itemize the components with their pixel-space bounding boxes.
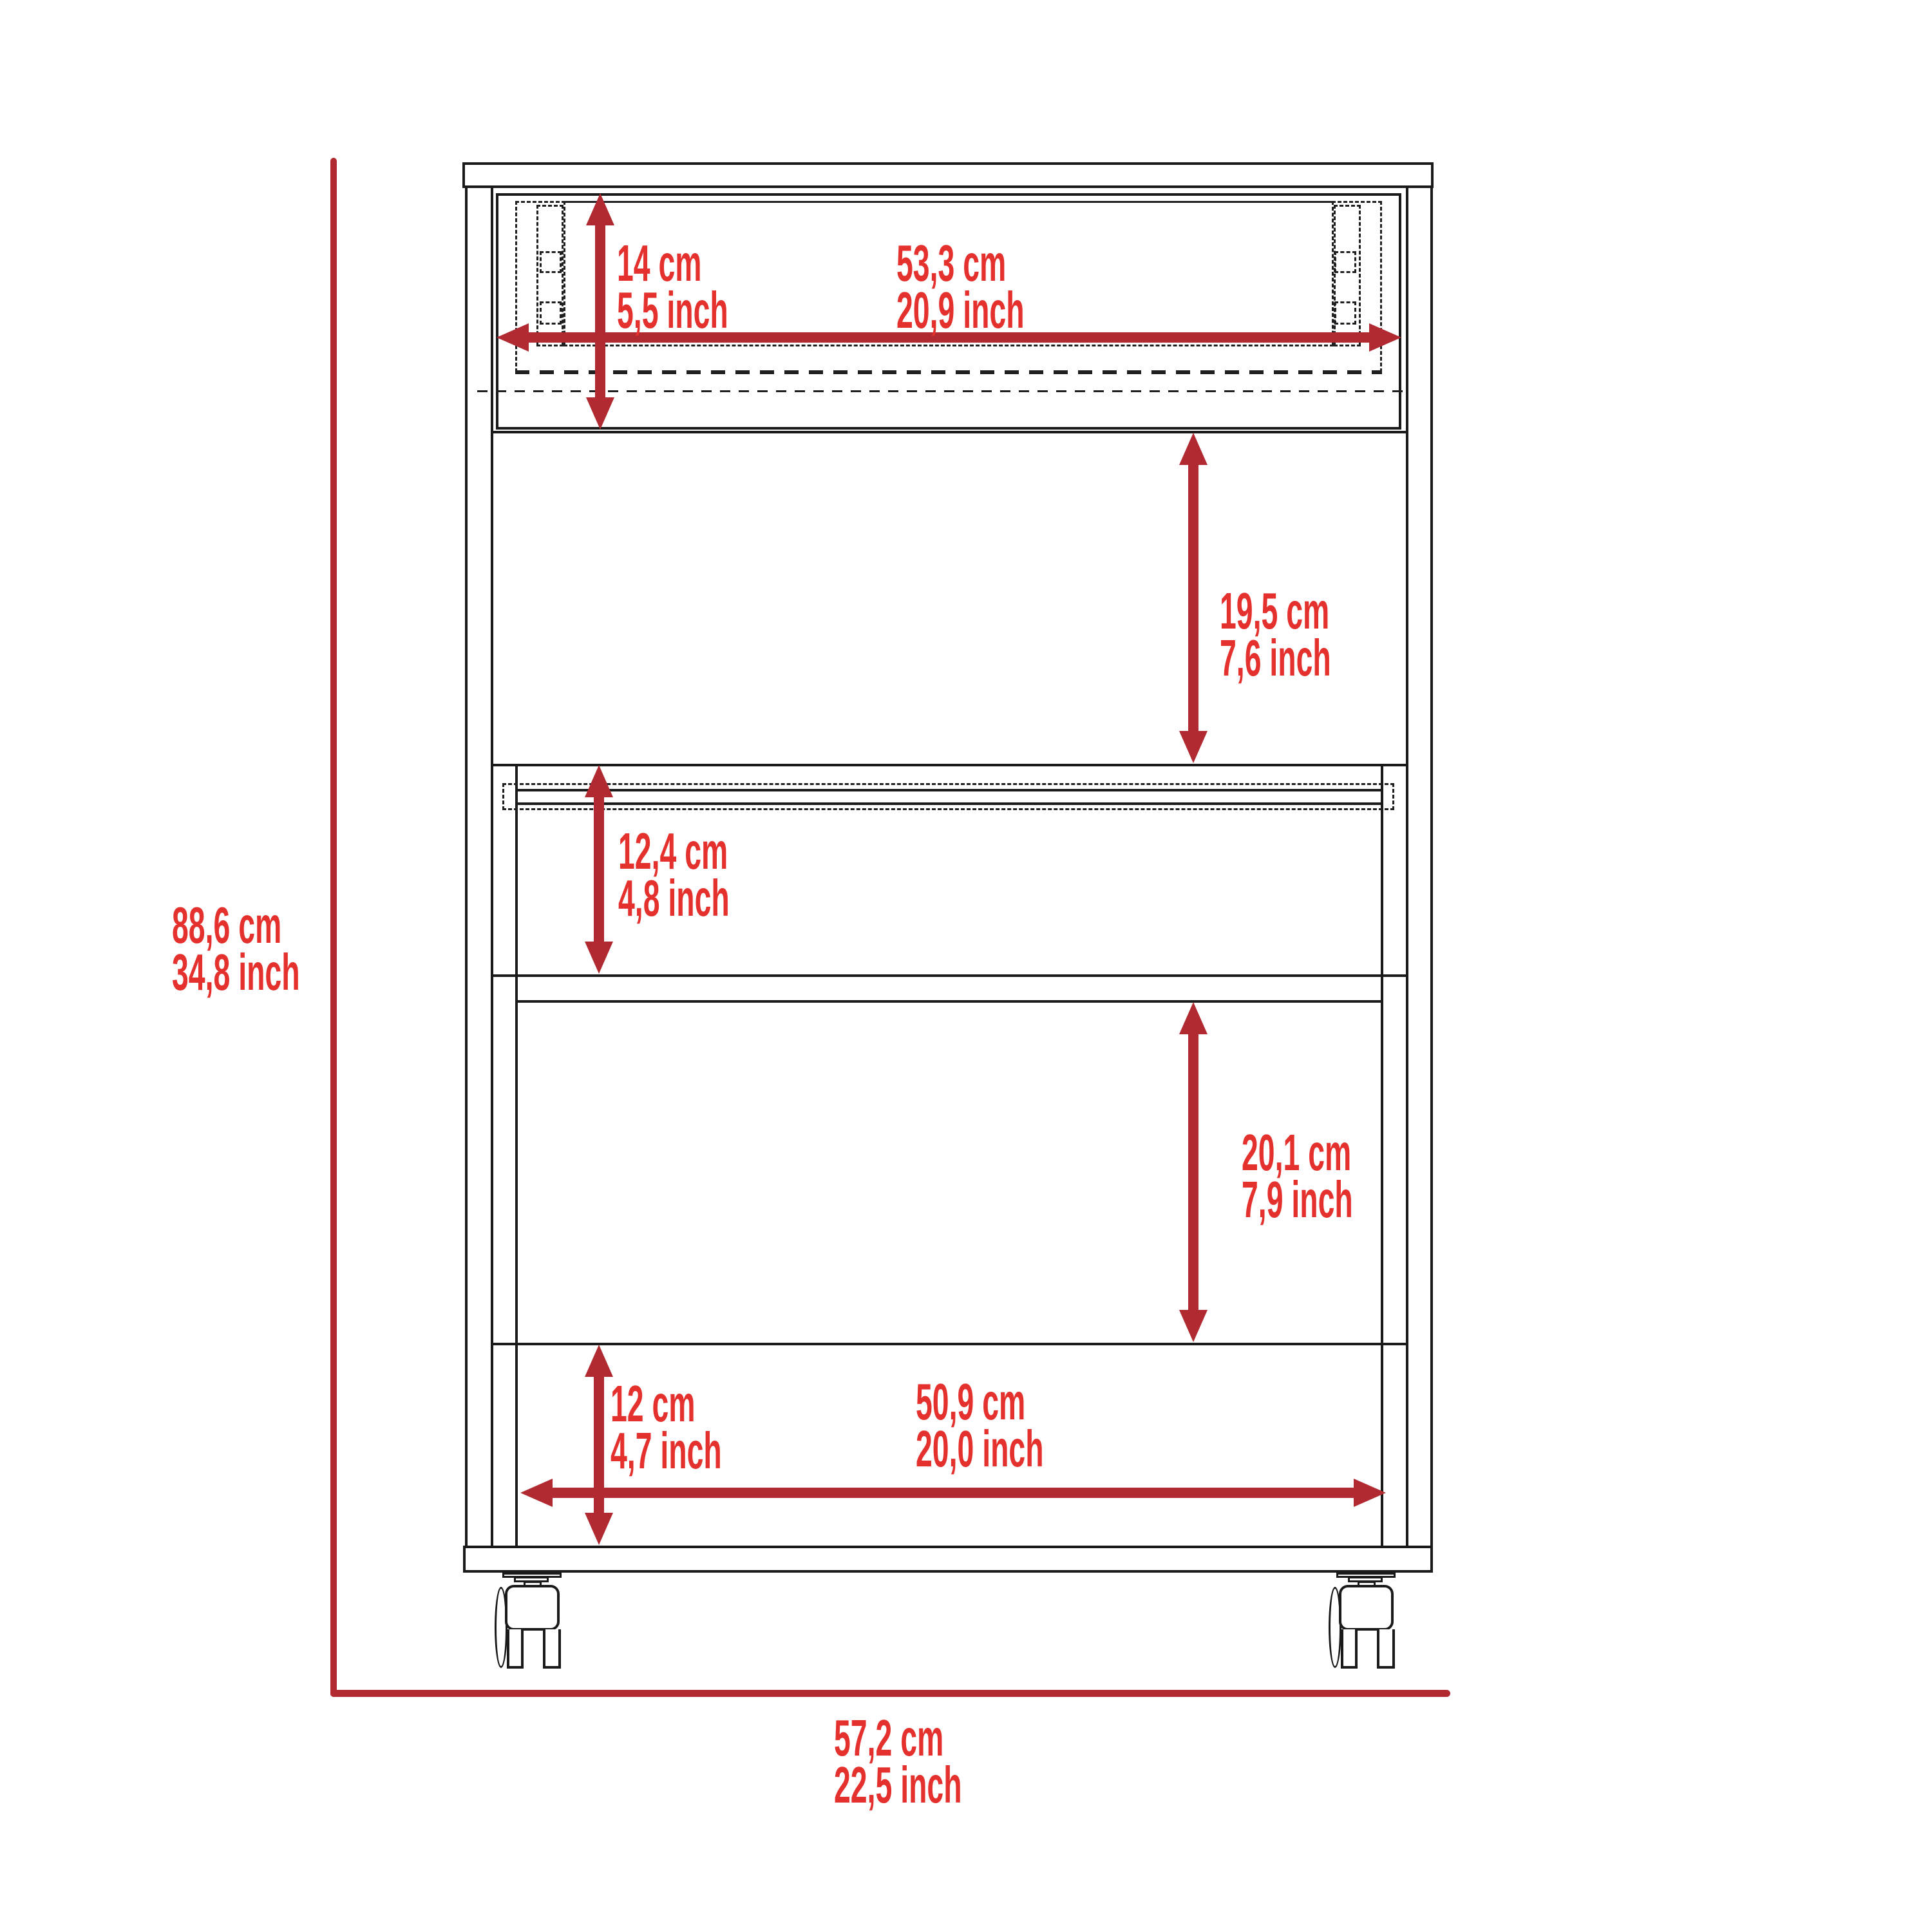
bottom-shelf-width-cm: 50,9 cm <box>916 1378 1044 1425</box>
caster-fork-left <box>507 1629 524 1669</box>
caster-fork-left <box>1341 1629 1358 1669</box>
cabinet-top-panel <box>462 162 1434 188</box>
shelf2-bottom-line <box>515 1000 1383 1003</box>
drawer-width-label: 53,3 cm 20,9 inch <box>896 240 1025 334</box>
lower-compartment-arrow <box>1179 1002 1207 1342</box>
slide-bracket-right-upper <box>1334 251 1356 273</box>
overall-width-cm: 57,2 cm <box>834 1714 962 1761</box>
bottom-shelf-top-line <box>491 1343 1408 1345</box>
shelf1-top-line <box>491 764 1408 766</box>
lower-compartment-cm: 20,1 cm <box>1242 1129 1353 1176</box>
overall-width-line <box>330 1690 1450 1697</box>
lower-compartment-label: 20,1 cm 7,9 inch <box>1242 1129 1353 1223</box>
arrow-right-icon <box>1354 1479 1386 1507</box>
drawer-dashed-line-long <box>477 390 1406 392</box>
upper-compartment-arrow <box>1179 433 1207 763</box>
overall-width-label: 57,2 cm 22,5 inch <box>834 1714 962 1808</box>
bottom-shelf-height-cm: 12 cm <box>611 1380 722 1427</box>
upper-compartment-inch: 7,6 inch <box>1220 634 1331 681</box>
right-interior-upright <box>1381 764 1383 1546</box>
shelf2-top-line <box>491 974 1408 977</box>
caster-fork-right <box>1377 1629 1395 1669</box>
arrow-down-icon <box>1179 731 1207 763</box>
bottom-shelf-height-inch: 4,7 inch <box>611 1427 722 1474</box>
drawer-height-inch: 5,5 inch <box>617 287 728 334</box>
arrow-down-icon <box>585 1513 613 1545</box>
middle-compartment-arrow <box>585 765 613 974</box>
bottom-shelf-width-inch: 20,0 inch <box>916 1425 1044 1472</box>
drawer-dashed-line-heavy <box>515 370 1382 374</box>
bottom-shelf-height-arrow <box>585 1345 613 1545</box>
arrow-down-icon <box>585 942 613 974</box>
bottom-shelf-width-label: 50,9 cm 20,0 inch <box>916 1378 1044 1472</box>
bottom-shelf-height-label: 12 cm 4,7 inch <box>611 1380 722 1474</box>
overall-height-inch: 34,8 inch <box>172 949 300 996</box>
caster-fork-right <box>543 1629 561 1669</box>
middle-compartment-cm: 12,4 cm <box>618 828 730 875</box>
middle-compartment-label: 12,4 cm 4,8 inch <box>618 828 730 922</box>
arrow-down-icon <box>586 397 614 430</box>
overall-height-line <box>330 158 337 1697</box>
drawer-height-arrow <box>586 193 614 430</box>
drawer-width-cm: 53,3 cm <box>896 240 1025 287</box>
right-side-outer-edge <box>1430 188 1433 1546</box>
bottom-shelf-width-arrow <box>520 1479 1386 1507</box>
caster-wheel <box>1339 1585 1394 1631</box>
upper-compartment-top-line <box>491 431 1408 433</box>
slide-bracket-right-lower <box>1334 301 1356 325</box>
caster-wheel <box>505 1585 560 1631</box>
slide-bracket-left-upper <box>540 251 562 273</box>
left-interior-upright <box>515 764 518 1546</box>
upper-compartment-label: 19,5 cm 7,6 inch <box>1220 587 1331 681</box>
slide-bracket-left-lower <box>540 301 562 325</box>
drawer-height-label: 14 cm 5,5 inch <box>617 240 728 334</box>
upper-compartment-cm: 19,5 cm <box>1220 587 1331 634</box>
dimension-diagram: 88,6 cm 34,8 inch 57,2 cm 22,5 inch 14 c… <box>0 0 1932 1932</box>
drawer-width-inch: 20,9 inch <box>896 287 1025 334</box>
lower-compartment-inch: 7,9 inch <box>1242 1176 1353 1223</box>
drawer-height-cm: 14 cm <box>617 240 728 287</box>
arrow-right-icon <box>1369 323 1401 352</box>
arrow-down-icon <box>1179 1310 1207 1342</box>
left-side-outer-edge <box>465 188 468 1546</box>
overall-height-label: 88,6 cm 34,8 inch <box>172 902 300 996</box>
overall-height-cm: 88,6 cm <box>172 902 300 949</box>
base-panel <box>463 1546 1433 1573</box>
middle-compartment-inch: 4,8 inch <box>618 875 730 922</box>
overall-width-inch: 22,5 inch <box>834 1761 962 1808</box>
pullout-shelf-dashed <box>502 783 1394 810</box>
